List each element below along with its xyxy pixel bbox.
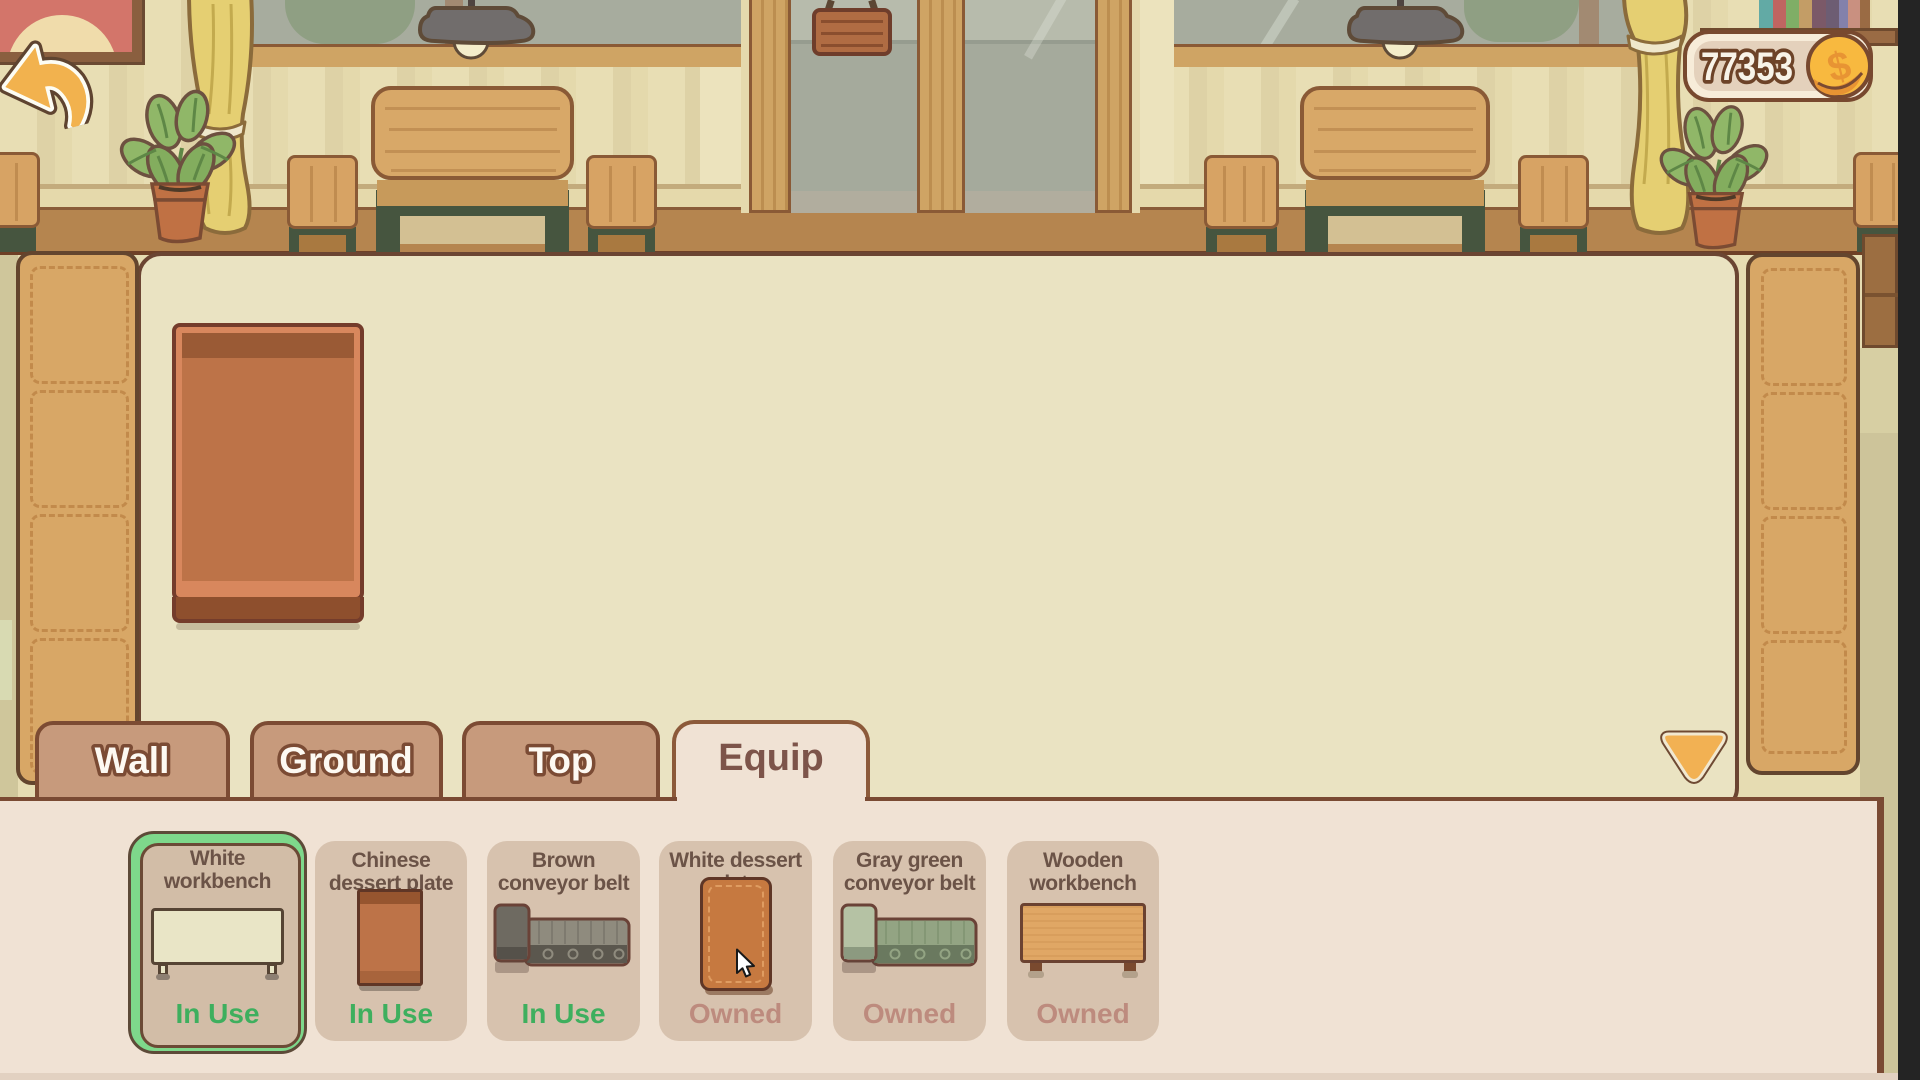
svg-text:Wall: Wall (95, 740, 170, 781)
svg-text:77353: 77353 (1701, 45, 1793, 89)
svg-text:Top: Top (528, 740, 593, 781)
svg-text:Ground: Ground (279, 740, 413, 781)
